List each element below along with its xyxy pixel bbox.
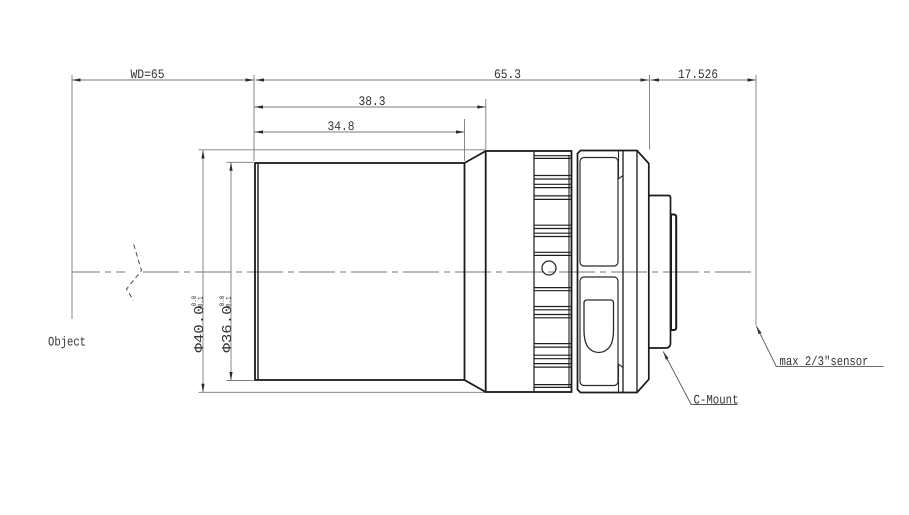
svg-text:Φ36.0: Φ36.0 (221, 306, 236, 353)
svg-text:max 2/3″sensor: max 2/3″sensor (780, 354, 869, 369)
svg-text:WD=65: WD=65 (131, 67, 165, 82)
svg-text:-0.1: -0.1 (226, 297, 234, 311)
svg-text:Φ40.0: Φ40.0 (193, 306, 208, 353)
svg-text:38.3: 38.3 (359, 94, 386, 109)
svg-text:34.8: 34.8 (328, 119, 355, 134)
svg-text:17.526: 17.526 (678, 67, 718, 82)
svg-text:C-Mount: C-Mount (694, 393, 739, 408)
svg-text:65.3: 65.3 (494, 67, 521, 82)
svg-text:Object: Object (48, 335, 86, 350)
svg-text:-0.1: -0.1 (198, 297, 206, 311)
